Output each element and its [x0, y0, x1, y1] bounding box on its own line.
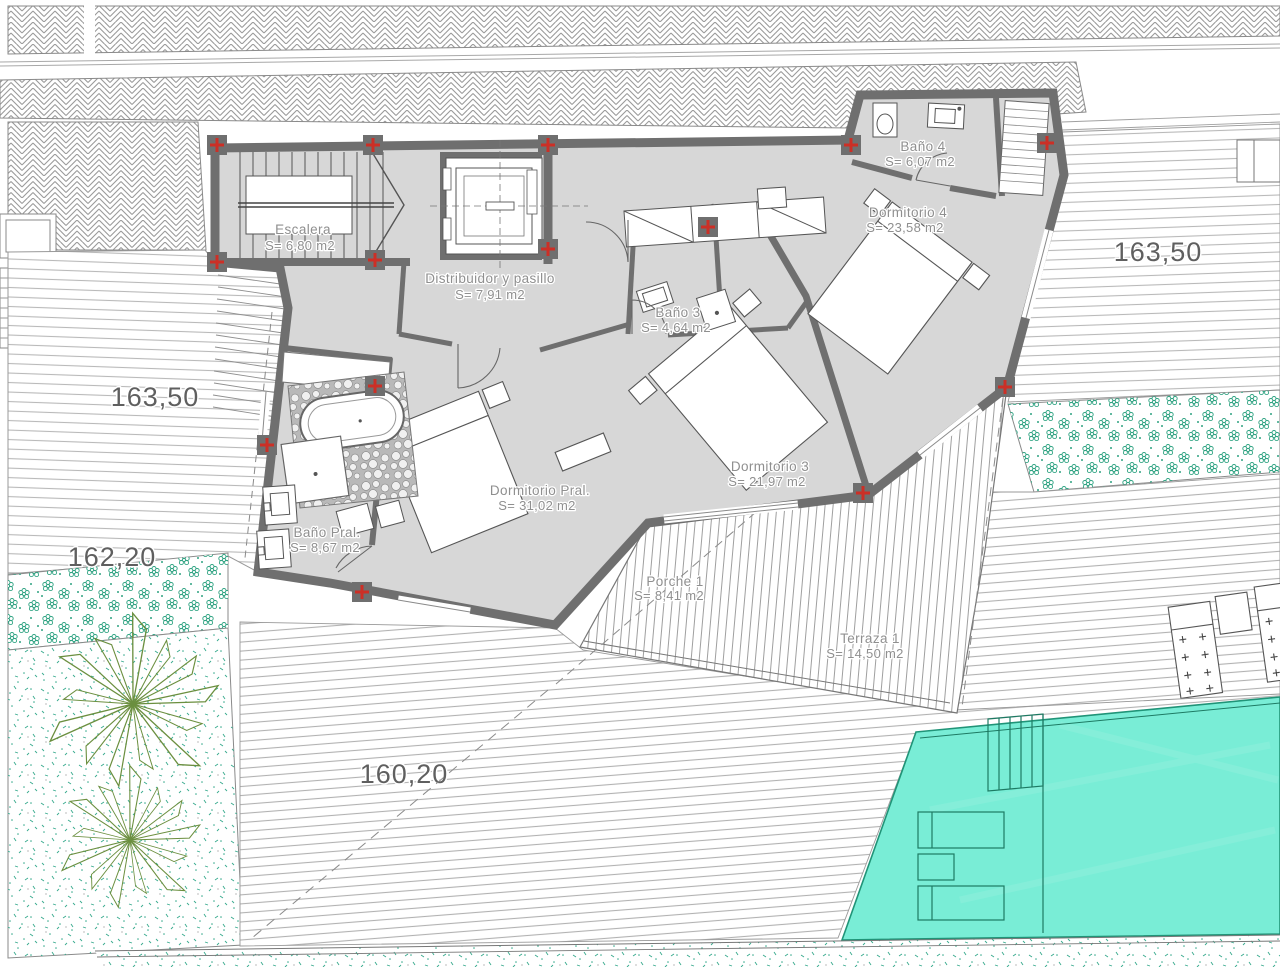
room-label-bano-pral: Baño Pral. S= 8,67 m2	[290, 525, 360, 555]
svg-text:Terraza 1: Terraza 1	[840, 631, 900, 646]
elevation-label-lower: 160,20	[360, 759, 449, 789]
svg-text:S= 7,91 m2: S= 7,91 m2	[455, 287, 525, 302]
sink	[257, 529, 292, 569]
svg-text:Dormitorio 3: Dormitorio 3	[731, 459, 809, 474]
deck-left-upper	[8, 250, 292, 574]
elevation-label-right-upper: 163,50	[1114, 237, 1203, 267]
room-label-escalera: Escalera S= 6,80 m2	[265, 222, 335, 253]
sink	[263, 485, 298, 525]
bath4-toilet	[873, 103, 897, 137]
svg-text:S= 21,97 m2: S= 21,97 m2	[728, 474, 805, 489]
elevation-label-mid-left: 162,20	[68, 542, 157, 572]
svg-text:Baño Pral.: Baño Pral.	[293, 525, 360, 540]
svg-text:S= 23,58 m2: S= 23,58 m2	[866, 220, 943, 235]
svg-text:Dormitorio Pral.: Dormitorio Pral.	[490, 483, 590, 498]
elevation-label-left-upper: 163,50	[111, 382, 200, 412]
svg-text:S= 4,64 m2: S= 4,64 m2	[641, 320, 711, 335]
svg-text:S= 14,50 m2: S= 14,50 m2	[826, 646, 903, 661]
svg-text:S= 8,41 m2: S= 8,41 m2	[634, 588, 704, 603]
svg-text:S= 6,07 m2: S= 6,07 m2	[885, 154, 955, 169]
svg-text:Baño 4: Baño 4	[900, 139, 945, 154]
svg-text:Escalera: Escalera	[275, 222, 331, 237]
floorplan-svg: 163,50 162,20 163,50	[0, 0, 1280, 967]
svg-text:S= 8,67 m2: S= 8,67 m2	[290, 540, 360, 555]
svg-text:Dormitorio 4: Dormitorio 4	[869, 205, 947, 220]
svg-text:S= 31,02 m2: S= 31,02 m2	[498, 498, 575, 513]
bath4-sink	[927, 103, 964, 129]
room-label-dormitorio4: Dormitorio 4 S= 23,58 m2	[866, 205, 947, 235]
svg-text:S= 6,80 m2: S= 6,80 m2	[265, 238, 335, 253]
deck-right-lower	[957, 474, 1280, 712]
deck-bench	[1237, 140, 1280, 182]
svg-text:Baño 3: Baño 3	[655, 305, 700, 320]
room-label-dormitorio-pral: Dormitorio Pral. S= 31,02 m2	[490, 483, 590, 513]
floor-plan-canvas: 163,50 162,20 163,50	[0, 0, 1280, 967]
svg-text:Distribuidor y pasillo: Distribuidor y pasillo	[425, 271, 555, 286]
room-label-dormitorio3: Dormitorio 3 S= 21,97 m2	[728, 459, 809, 489]
svg-text:Porche 1: Porche 1	[646, 574, 703, 589]
